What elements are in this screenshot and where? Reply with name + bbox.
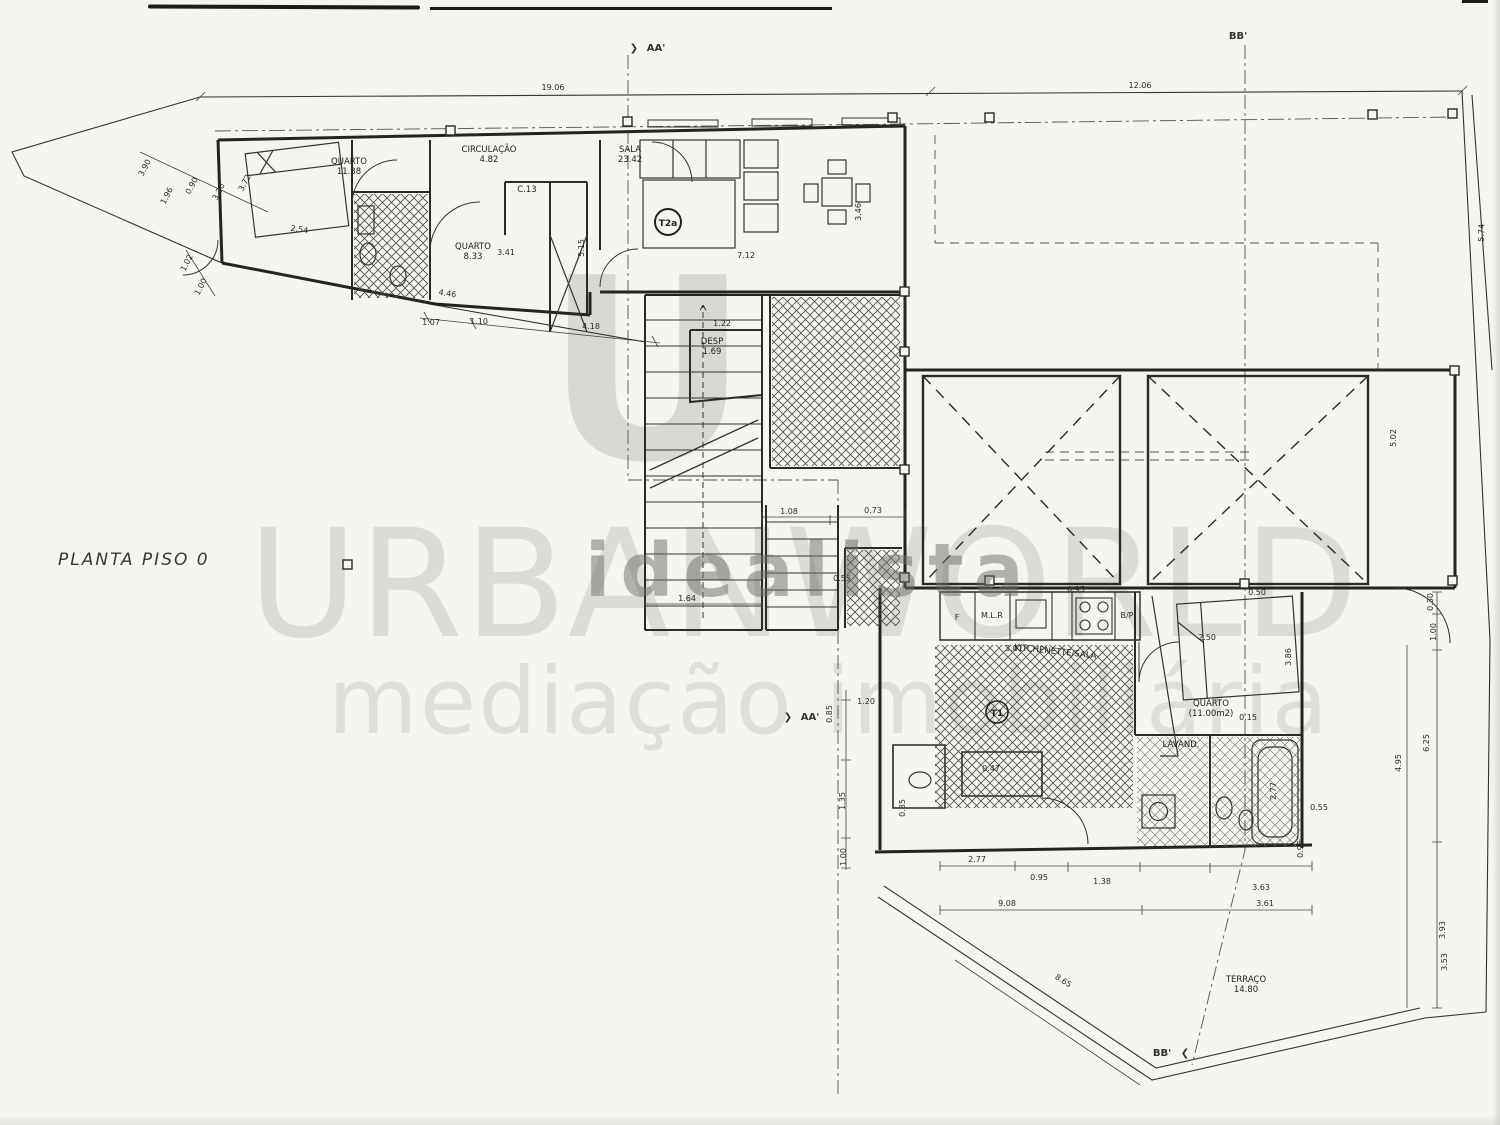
dimension-label: 2.77 (968, 855, 986, 864)
page-title: PLANTA PISO 0 (58, 550, 210, 570)
dimension-label: 19.06 (542, 83, 565, 92)
dimension-label: 5.15 (577, 239, 586, 257)
dimension-label: 0.95 (1030, 873, 1048, 882)
dimension-label: 6.25 (1422, 734, 1431, 752)
scan-edge-shadow (0, 1115, 1500, 1125)
dimension-label: 4.95 (1394, 754, 1403, 772)
room-label-quarto2: QUARTO (455, 242, 491, 252)
dimension-label: 1.20 (857, 697, 875, 706)
dimension-label: 0.73 (864, 506, 882, 515)
dimension-label: 1.38 (1093, 877, 1111, 886)
dimension-label: 0.85 (825, 705, 834, 723)
dimension-label: 1.08 (780, 507, 798, 516)
dimension-label: 0.47 (982, 764, 1000, 773)
dimension-label: 7.12 (737, 251, 755, 260)
dimension-label: 5.74 (1477, 224, 1487, 242)
door-leaf (1152, 596, 1178, 756)
room-area-quarto3: (11.00m2) (1189, 709, 1234, 719)
floor-plan-drawing: PLANTA PISO 0 ❯ AA' BB' ❯ AA' BB' ❮ QUAR… (0, 0, 1500, 1125)
dimension-label: 1.07 (422, 318, 440, 327)
dimension-label: 3.86 (1284, 648, 1293, 666)
unit-badge-t1: T1 (991, 709, 1003, 719)
room-area-desp: 1.69 (703, 347, 722, 357)
unit-badge-t2: T2a (659, 219, 677, 229)
dimension-label: 1.00 (193, 277, 209, 297)
dimension-label: 5.02 (1389, 429, 1398, 447)
appliance-label-bp: B/P (1120, 611, 1133, 620)
section-marker-aa-mid: AA' (801, 712, 820, 723)
dimension-label: 4.18 (582, 322, 600, 331)
site-boundary (12, 91, 1492, 1080)
appliance-label-fridge: F (955, 613, 960, 622)
dimension-label: 3.46 (854, 203, 863, 221)
section-marker-bb-top: BB' (1229, 31, 1247, 42)
dimension-label: 0.90 (184, 176, 200, 196)
dimension-label: 12.06 (1129, 81, 1152, 90)
appliance-label-washer: M.L.R (981, 611, 1003, 620)
dimension-label: 4.46 (438, 288, 457, 300)
scan-streak (1462, 0, 1488, 3)
dimension-label: 3.53 (1440, 953, 1449, 971)
section-arrow-icon: ❮ (1181, 1048, 1189, 1059)
dimension-label: 1.02 (179, 253, 195, 273)
dimension-label: 3.93 (1438, 921, 1447, 939)
room-area-sala: 23.42 (618, 155, 642, 165)
dimension-label: 0.30 (1426, 593, 1435, 611)
room-area-circulacao: 4.82 (480, 155, 499, 165)
room-label-terraco: TERRAÇO (1225, 975, 1267, 985)
dimension-label: 1.22 (713, 319, 731, 328)
dimension-label: 1.96 (159, 186, 175, 206)
labels: PLANTA PISO 0 ❯ AA' BB' ❯ AA' BB' ❮ QUAR… (58, 31, 1486, 1059)
dimension-label: 1.00 (839, 848, 848, 866)
section-marker-bb-bottom: BB' (1153, 1048, 1171, 1059)
bed-quarto3 (1177, 596, 1299, 700)
dimension-label: 1.64 (678, 594, 696, 603)
room-label-sala: SALA (619, 145, 641, 155)
scan-edge-shadow (1492, 0, 1500, 1125)
room-label-quarto3: QUARTO (1193, 699, 1229, 709)
dimension-label: 0.95 (1067, 585, 1085, 594)
room-area-terraco: 14.80 (1234, 985, 1258, 995)
sofa (640, 140, 740, 248)
courtyard-voids (923, 376, 1368, 584)
dimension-label: 2.50 (1198, 633, 1216, 642)
room-area-quarto2: 8.33 (464, 252, 483, 262)
dimension-label: 3.63 (1252, 883, 1270, 892)
armchairs (744, 140, 778, 232)
room-label-lavand: LAVAND. (1163, 740, 1200, 750)
dimension-label: 1.00 (1429, 623, 1438, 641)
section-marker-aa-top: AA' (647, 43, 666, 54)
dimension-label: 3.90 (137, 158, 153, 178)
kitchen-sink-icon (1016, 600, 1046, 628)
dimension-label: 1.35 (838, 792, 847, 810)
dimension-label: 3.01 (1005, 644, 1023, 653)
wc-icon (909, 772, 931, 788)
dimension-label: 0.85 (898, 799, 907, 817)
room-label-closet: C.13 (517, 185, 536, 195)
dimension-label: 0.50 (1248, 588, 1266, 597)
room-label-quarto1: QUARTO (331, 157, 367, 167)
grid-nodes (343, 109, 1459, 588)
section-arrow-icon: ❯ (630, 43, 638, 54)
dimension-label: 2.54 (290, 224, 309, 236)
dimension-label: 3.72 (237, 173, 253, 193)
dimension-label: 1.10 (470, 317, 488, 326)
scanned-floor-plan-page: U URBANWORLD mediação imobiliária (0, 0, 1500, 1125)
dimension-label: 0.15 (1239, 713, 1257, 722)
dimension-label: 0.55 (1310, 803, 1328, 812)
dimension-label: 0.55 (833, 574, 851, 583)
scan-streak (430, 7, 832, 10)
dimension-label: 9.08 (998, 899, 1016, 908)
room-label-circulacao: CIRCULAÇÃO (462, 144, 517, 155)
dimension-label: 3.41 (497, 248, 515, 257)
dimension-lines (140, 86, 1467, 1085)
dimension-label: 0.95 (1296, 840, 1305, 858)
dimension-label: 8.65 (1053, 972, 1073, 989)
dimension-label: 3.61 (1256, 899, 1274, 908)
section-arrow-icon: ❯ (784, 712, 792, 723)
dimension-label: 2.77 (1269, 782, 1278, 800)
room-label-desp: DESP (701, 337, 723, 347)
room-area-quarto1: 11.38 (337, 167, 361, 177)
